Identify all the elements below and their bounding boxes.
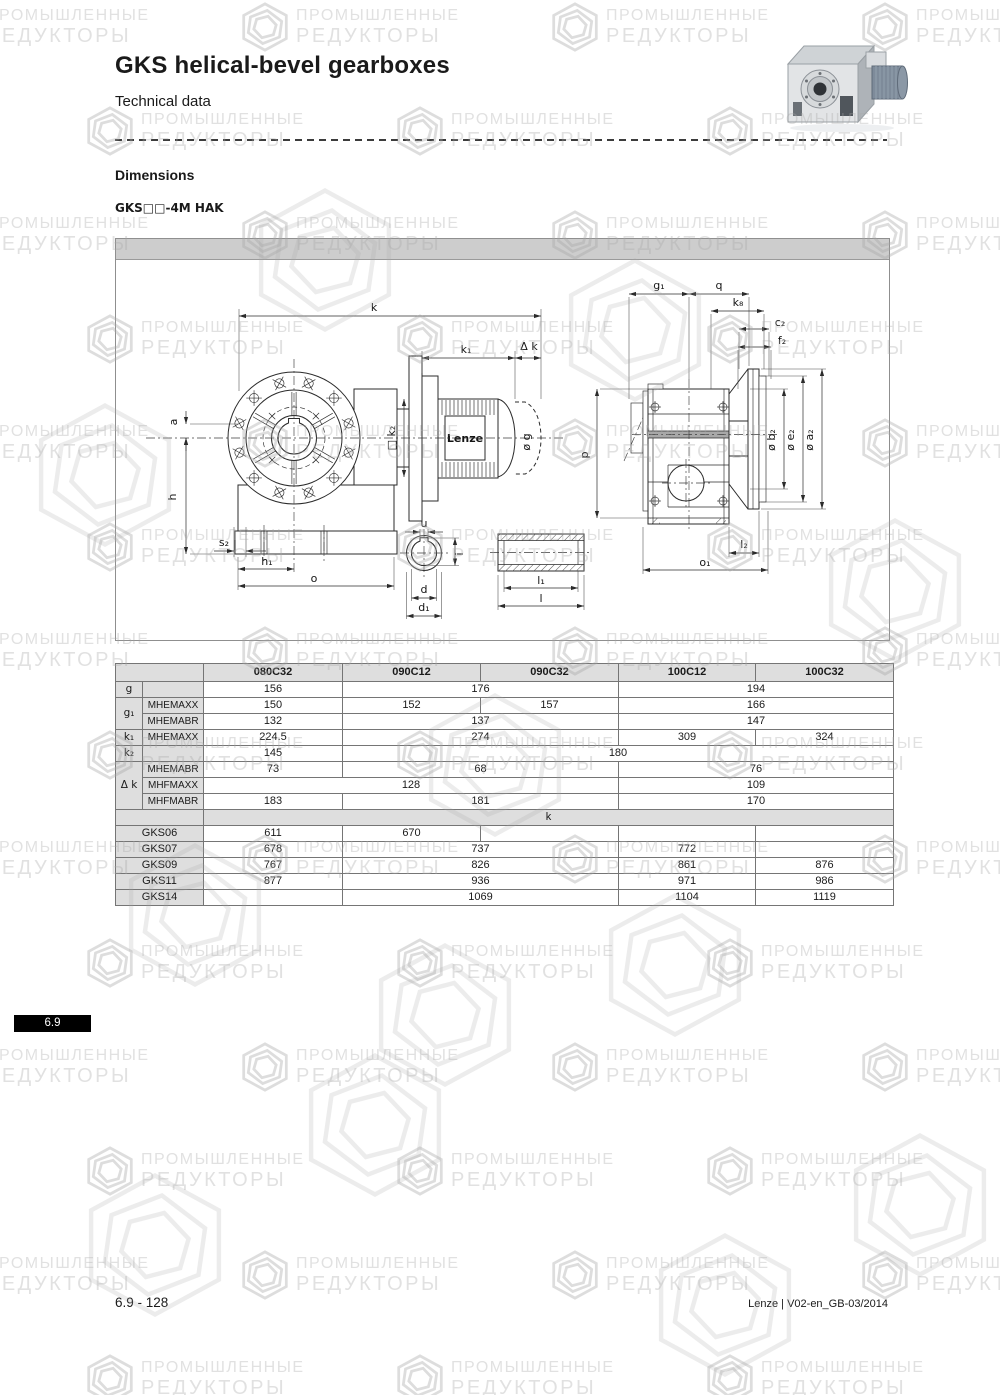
dimensions-table: 080C32 090C12 090C32 100C12 100C32 g 156…: [115, 663, 894, 906]
value-cell: 772: [619, 842, 756, 858]
row-label: g₁: [116, 698, 143, 730]
row-sublabel: MHEMABR: [143, 714, 204, 730]
watermark-hexagon: [370, 940, 520, 1095]
table-section-row: k: [116, 810, 894, 826]
section-label: k: [204, 810, 894, 826]
value-cell: 224.5: [204, 730, 343, 746]
value-cell: 877: [204, 874, 343, 890]
value-cell: 170: [619, 794, 894, 810]
column-header: 100C32: [756, 664, 894, 682]
value-cell: 876: [756, 858, 894, 874]
row-sublabel: MHEMABR: [143, 762, 204, 778]
side-view: [624, 369, 780, 529]
watermark: ПРОМЫШЛЕННЫЕРЕДУКТОРЫ: [240, 2, 460, 52]
value-cell: [756, 842, 894, 858]
value-cell: [756, 826, 894, 842]
watermark: ПРОМЫШЛЕННЫЕРЕДУКТОРЫ: [85, 1146, 305, 1196]
value-cell: 309: [619, 730, 756, 746]
value-cell: 986: [756, 874, 894, 890]
value-cell: 861: [619, 858, 756, 874]
watermark: ПРОМЫШЛЕННЫЕРЕДУКТОРЫ: [85, 938, 305, 988]
watermark: ПРОМЫШЛЕННЫЕРЕДУКТОРЫ: [240, 1250, 460, 1300]
table-row: MHFMABR 183 181 170: [116, 794, 894, 810]
dim-label-e2: ø e₂: [784, 429, 797, 450]
row-label: k₁: [116, 730, 143, 746]
value-cell: 274: [343, 730, 619, 746]
watermark: ПРОМЫШЛЕННЫЕРЕДУКТОРЫ: [705, 1146, 925, 1196]
value-cell: 176: [343, 682, 619, 698]
value-cell: 181: [343, 794, 619, 810]
gearbox-photo-illustration: [778, 34, 912, 136]
dim-label-o: o: [311, 572, 318, 585]
table-row: MHEMABR 132 137 147: [116, 714, 894, 730]
value-cell: 68: [343, 762, 619, 778]
dim-label-h1: h₁: [261, 555, 272, 568]
table-row: GKS07 678 737 772: [116, 842, 894, 858]
value-cell: 137: [343, 714, 619, 730]
table-row: MHFMAXX 128 109: [116, 778, 894, 794]
value-cell: 166: [619, 698, 894, 714]
dashed-divider: [115, 139, 887, 141]
dim-label-h: h: [166, 493, 179, 500]
dim-label-g: ø g: [520, 433, 533, 450]
table-header-row: 080C32 090C12 090C32 100C12 100C32: [116, 664, 894, 682]
value-cell: 145: [204, 746, 343, 762]
dim-label-o1: o₁: [699, 556, 710, 569]
dim-label-g1: g₁: [653, 279, 664, 292]
column-header: 090C32: [481, 664, 619, 682]
watermark-hexagon: [845, 1130, 995, 1285]
row-sublabel: MHFMAXX: [143, 778, 204, 794]
row-sublabel: [143, 682, 204, 698]
gks-row-label: GKS09: [116, 858, 204, 874]
column-header: 100C12: [619, 664, 756, 682]
dim-label-u: u: [421, 517, 428, 530]
section-heading: Dimensions: [115, 167, 194, 183]
dim-label-d1: d₁: [418, 601, 429, 614]
value-cell: [481, 826, 619, 842]
technical-drawing: Lenze: [116, 239, 889, 639]
page-title: GKS helical-bevel gearboxes: [115, 52, 450, 80]
dim-label-k: k: [371, 301, 378, 314]
row-sublabel: MHFMABR: [143, 794, 204, 810]
value-cell: 152: [343, 698, 481, 714]
value-cell: 157: [481, 698, 619, 714]
gks-row-label: GKS11: [116, 874, 204, 890]
value-cell: 128: [204, 778, 619, 794]
watermark: ПРОМЫШЛЕННЫЕРЕДУКТОРЫ: [705, 938, 925, 988]
watermark-hexagon: [300, 1050, 450, 1205]
watermark: ПРОМЫШЛЕННЫЕРЕДУКТОРЫ: [705, 1354, 925, 1395]
dim-label-i: i: [453, 552, 466, 555]
dim-label-l: l: [539, 592, 542, 605]
value-cell: 324: [756, 730, 894, 746]
value-cell: 73: [204, 762, 343, 778]
value-cell: 147: [619, 714, 894, 730]
document-page: GKS helical-bevel gearboxes Technical da…: [0, 0, 1000, 1395]
gks-row-label: GKS14: [116, 890, 204, 906]
watermark: ПРОМЫШЛЕННЫЕРЕДУКТОРЫ: [395, 1354, 615, 1395]
value-cell: [204, 890, 343, 906]
product-photo: [778, 34, 912, 136]
dim-label-f2: f₂: [778, 334, 786, 347]
value-cell: [619, 826, 756, 842]
table-row: GKS09 767 826 861 876: [116, 858, 894, 874]
watermark: ПРОМЫШЛЕННЫЕРЕДУКТОРЫ: [550, 1042, 770, 1092]
watermark: ПРОМЫШЛЕННЫЕРЕДУКТОРЫ: [395, 938, 615, 988]
value-cell: 670: [343, 826, 481, 842]
table-row: GKS11 877 936 971 986: [116, 874, 894, 890]
watermark: ПРОМЫШЛЕННЫЕРЕДУКТОРЫ: [860, 1042, 1000, 1092]
watermark: ПРОМЫШЛЕННЫЕРЕДУКТОРЫ: [395, 106, 615, 156]
sleeve-section-view: l₁ l: [490, 534, 592, 610]
gks-row-label: GKS07: [116, 842, 204, 858]
dim-label-l1: l₁: [537, 574, 544, 587]
watermark: ПРОМЫШЛЕННЫЕРЕДУКТОРЫ: [860, 1250, 1000, 1300]
dim-label-p: p: [578, 451, 591, 458]
table-row: g 156 176 194: [116, 682, 894, 698]
watermark: ПРОМЫШЛЕННЫЕРЕДУКТОРЫ: [0, 1042, 150, 1092]
table-row: k₂ 145 180: [116, 746, 894, 762]
row-label: k₂: [116, 746, 143, 762]
value-cell: 194: [619, 682, 894, 698]
dim-label-d: d: [421, 583, 428, 596]
table-row: Δ k MHEMABR 73 68 76: [116, 762, 894, 778]
value-cell: 180: [343, 746, 894, 762]
watermark: ПРОМЫШЛЕННЫЕРЕДУКТОРЫ: [395, 1146, 615, 1196]
value-cell: 826: [343, 858, 619, 874]
shaft-section-view: u i d d₁: [400, 517, 466, 619]
watermark: ПРОМЫШЛЕННЫЕРЕДУКТОРЫ: [550, 1250, 770, 1300]
variant-label: GKS□□-4M HAK: [115, 201, 224, 215]
table-row: GKS06 611 670: [116, 826, 894, 842]
row-sublabel: [143, 746, 204, 762]
row-label: Δ k: [116, 762, 143, 810]
watermark: ПРОМЫШЛЕННЫЕРЕДУКТОРЫ: [0, 1250, 150, 1300]
value-cell: 150: [204, 698, 343, 714]
value-cell: 1104: [619, 890, 756, 906]
drawing-caption-band: [116, 239, 889, 259]
gks-row-label: GKS06: [116, 826, 204, 842]
watermark: ПРОМЫШЛЕННЫЕРЕДУКТОРЫ: [0, 2, 150, 52]
dimension-drawing-panel: Lenze: [115, 238, 890, 641]
column-header: 090C12: [343, 664, 481, 682]
watermark-hexagon: [600, 890, 750, 1045]
dim-label-k8: k₈: [733, 296, 744, 309]
value-cell: 678: [204, 842, 343, 858]
dim-label-q: q: [716, 279, 723, 292]
value-cell: 1119: [756, 890, 894, 906]
value-cell: 767: [204, 858, 343, 874]
dim-label-a: a: [167, 419, 180, 426]
dim-label-k1: k₁: [461, 343, 472, 356]
watermark: ПРОМЫШЛЕННЫЕРЕДУКТОРЫ: [550, 2, 770, 52]
value-cell: 737: [343, 842, 619, 858]
value-cell: 132: [204, 714, 343, 730]
value-cell: 183: [204, 794, 343, 810]
motor-brand-label: Lenze: [447, 432, 483, 445]
column-header: 080C32: [204, 664, 343, 682]
row-sublabel: MHEMAXX: [143, 698, 204, 714]
section-corner: [116, 810, 204, 826]
dim-label-b2: ø b₂: [765, 429, 778, 451]
dim-label-s2: s₂: [219, 536, 229, 549]
dim-label-c2: c₂: [775, 316, 785, 329]
page-subtitle: Technical data: [115, 93, 211, 110]
dim-label-dk: Δ k: [520, 340, 538, 353]
dim-label-l2: l₂: [740, 538, 747, 551]
footer-page-number: 6.9 - 128: [115, 1295, 168, 1310]
value-cell: 156: [204, 682, 343, 698]
chapter-tab-badge: 6.9: [14, 1015, 91, 1032]
row-label: g: [116, 682, 143, 698]
dim-label-a2: ø a₂: [803, 429, 816, 450]
value-cell: 1069: [343, 890, 619, 906]
value-cell: 76: [619, 762, 894, 778]
table-row: g₁ MHEMAXX 150 152 157 166: [116, 698, 894, 714]
dim-label-k2: □ k₂: [385, 426, 398, 451]
value-cell: 109: [619, 778, 894, 794]
table-row: GKS14 1069 1104 1119: [116, 890, 894, 906]
watermark: ПРОМЫШЛЕННЫЕРЕДУКТОРЫ: [240, 1042, 460, 1092]
value-cell: 936: [343, 874, 619, 890]
value-cell: 611: [204, 826, 343, 842]
table-corner-cell: [116, 664, 204, 682]
value-cell: 971: [619, 874, 756, 890]
watermark: ПРОМЫШЛЕННЫЕРЕДУКТОРЫ: [85, 1354, 305, 1395]
footer-doc-reference: Lenze | V02-en_GB-03/2014: [748, 1298, 888, 1310]
row-sublabel: MHEMAXX: [143, 730, 204, 746]
table-row: k₁ MHEMAXX 224.5 274 309 324: [116, 730, 894, 746]
watermark: ПРОМЫШЛЕННЫЕРЕДУКТОРЫ: [85, 106, 305, 156]
